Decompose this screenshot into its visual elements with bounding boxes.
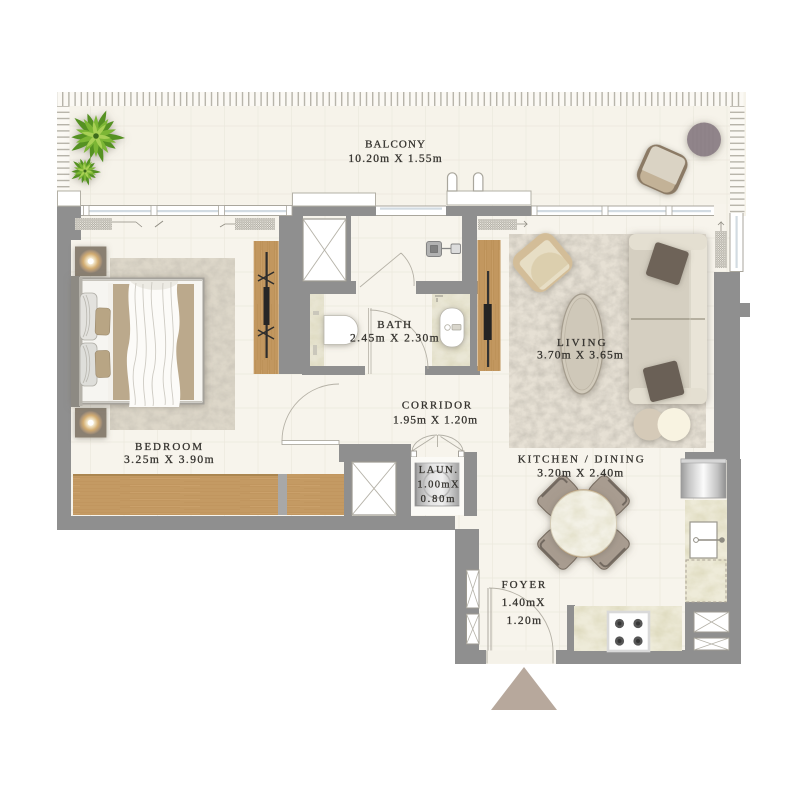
- svg-text:1.95m X 1.20m: 1.95m X 1.20m: [393, 415, 478, 427]
- svg-text:LAUN.: LAUN.: [419, 465, 459, 476]
- svg-text:BATH: BATH: [377, 319, 413, 331]
- svg-text:1.40mX: 1.40mX: [502, 597, 546, 609]
- svg-text:0.80m: 0.80m: [421, 494, 457, 505]
- svg-text:2.45m X 2.30m: 2.45m X 2.30m: [350, 333, 440, 345]
- svg-text:3.20m X 2.40m: 3.20m X 2.40m: [537, 467, 624, 479]
- svg-text:1.20m: 1.20m: [506, 615, 542, 627]
- svg-text:FOYER: FOYER: [502, 579, 548, 591]
- svg-text:BALCONY: BALCONY: [365, 139, 426, 151]
- svg-text:3.25m X 3.90m: 3.25m X 3.90m: [124, 454, 215, 466]
- svg-text:CORRIDOR: CORRIDOR: [402, 400, 473, 412]
- svg-text:3.70m X 3.65m: 3.70m X 3.65m: [537, 349, 624, 361]
- svg-text:1.00mX: 1.00mX: [417, 479, 460, 490]
- svg-text:10.20m X 1.55m: 10.20m X 1.55m: [348, 153, 442, 165]
- svg-text:LIVING: LIVING: [557, 337, 608, 349]
- svg-text:BEDROOM: BEDROOM: [135, 441, 204, 453]
- svg-text:KITCHEN / DINING: KITCHEN / DINING: [518, 453, 646, 465]
